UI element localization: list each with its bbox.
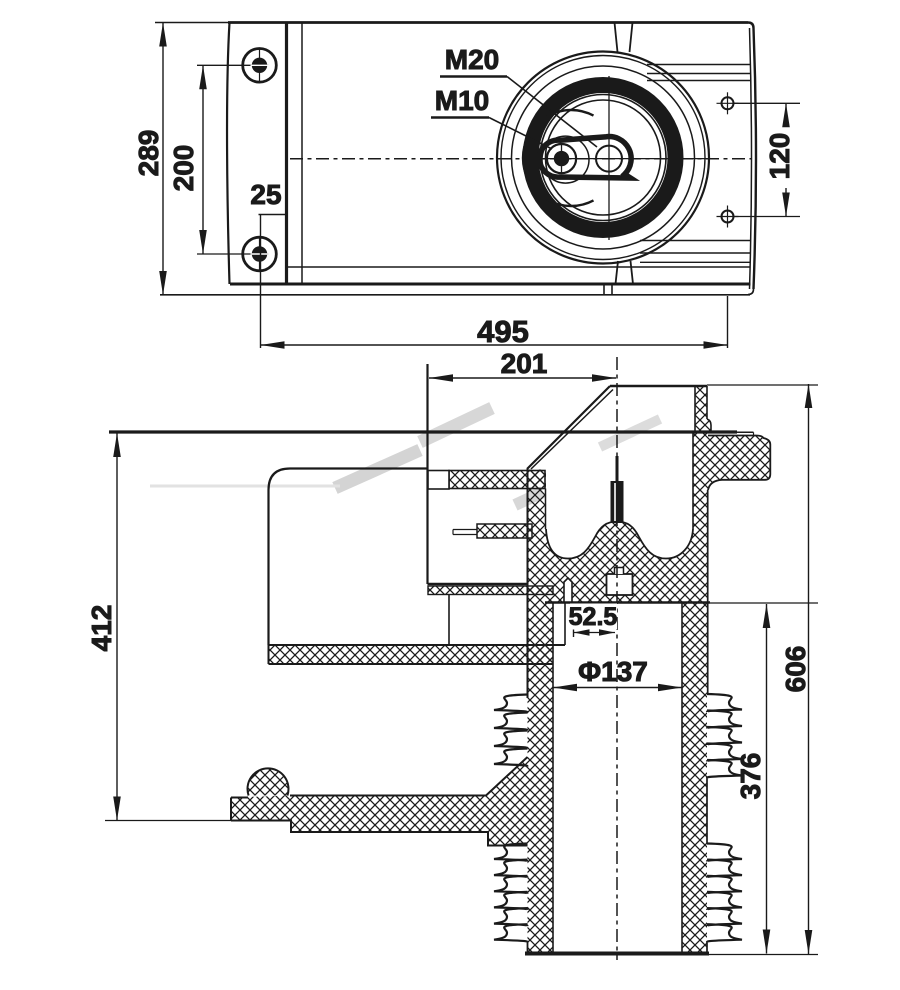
svg-text:200: 200 (168, 145, 199, 192)
svg-text:201: 201 (501, 348, 548, 379)
svg-text:52.5: 52.5 (569, 603, 618, 631)
svg-text:Φ137: Φ137 (578, 656, 648, 687)
svg-text:495: 495 (477, 314, 529, 349)
svg-text:606: 606 (780, 646, 811, 693)
svg-text:412: 412 (86, 605, 117, 652)
svg-text:120: 120 (764, 133, 795, 180)
svg-text:M10: M10 (435, 85, 489, 116)
svg-text:289: 289 (133, 130, 164, 177)
svg-text:25: 25 (250, 179, 281, 210)
svg-text:M20: M20 (445, 44, 499, 75)
svg-text:376: 376 (735, 753, 766, 800)
